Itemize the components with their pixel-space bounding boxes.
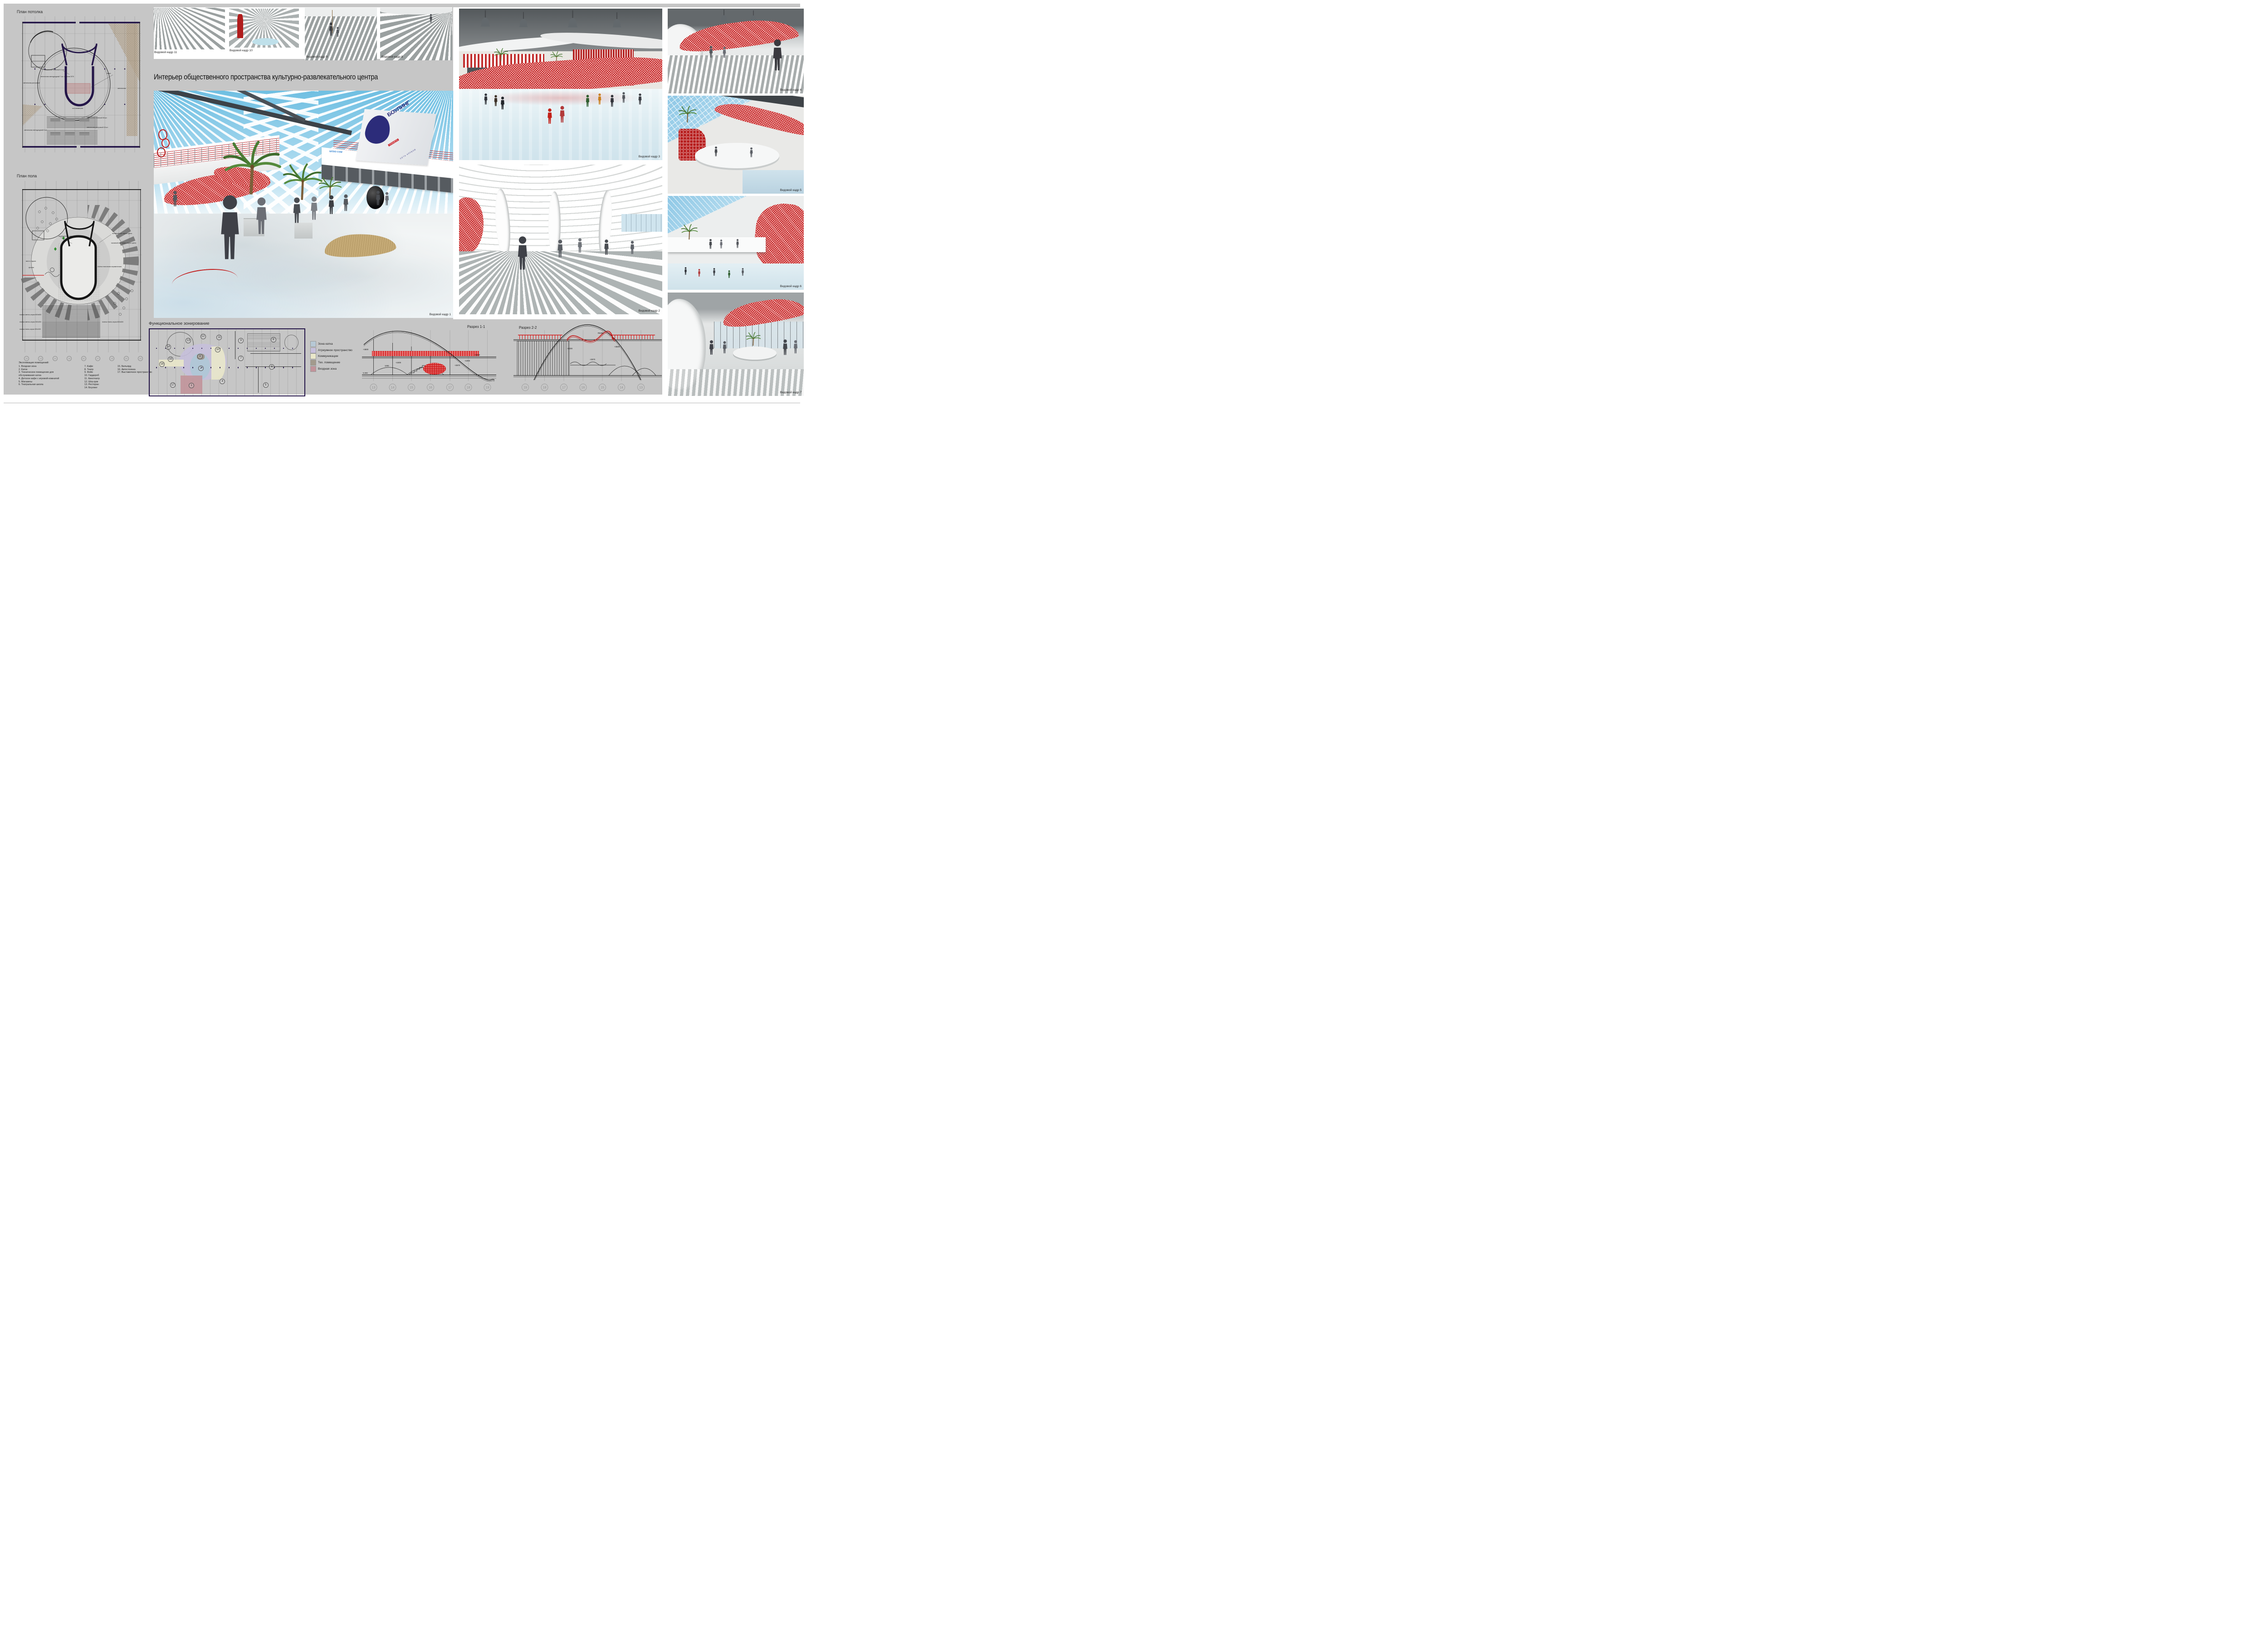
skater-silhouette — [610, 95, 615, 107]
skater-silhouette — [713, 268, 716, 276]
zoning-title: Функциональное зонирование — [149, 321, 210, 326]
round-planter-bench — [733, 346, 777, 360]
dimension: +2670 — [455, 364, 460, 366]
section-grid-number: 14 — [391, 386, 395, 390]
person-silhouette — [709, 239, 713, 249]
striped-ceiling-perspective — [154, 8, 225, 49]
zone-number: 3 — [197, 354, 203, 359]
hanging-lamp — [518, 12, 529, 29]
ceiling-plan-drawing: светильник точечный 11 шт. светильник св… — [19, 15, 144, 156]
person-silhouette — [722, 47, 727, 59]
ceiling-annotation: светильник точечный 36 шт. — [87, 117, 107, 119]
legend-swatch-communications — [310, 353, 316, 359]
floor-plan-title: План пола — [17, 174, 37, 178]
view-render-4: Видовой кадр 4 — [668, 9, 804, 93]
section-grid-number: 13 — [639, 386, 643, 390]
section-grid-number: 19 — [486, 386, 489, 390]
person-silhouette — [714, 146, 718, 157]
legend-swatch-atrium — [310, 347, 316, 353]
column-dots-row — [156, 367, 298, 368]
section-grid-number: 13 — [372, 386, 376, 390]
legend-label: Коммуникации — [318, 355, 338, 358]
explication-item: 1. Входная зона — [19, 365, 69, 368]
partition-wall — [235, 331, 235, 359]
person-silhouette — [384, 192, 390, 206]
view-render-11 — [154, 8, 225, 49]
pool-water — [252, 38, 279, 45]
palm-tree — [676, 106, 699, 123]
explication-item: 13. Ресторан — [84, 383, 116, 386]
dimension: +1000 — [464, 360, 470, 362]
zone-number: 5 — [263, 382, 269, 388]
skater-silhouette — [484, 93, 488, 105]
zone-number: 15 — [168, 356, 173, 362]
legend-swatch-entrance — [310, 366, 316, 372]
person-silhouette — [309, 196, 319, 221]
person-silhouette — [630, 241, 635, 255]
view-render-5: Видовой кадр 5 — [668, 96, 804, 194]
ceiling-annotation: светильник растровый 18 шт. — [87, 127, 108, 128]
section-2-2-drawing: 19 18 17 16 15 14 13 +1000 +2670 +3500 R… — [513, 321, 662, 395]
zone-number: 11 — [216, 335, 222, 340]
palm-tree — [744, 332, 763, 346]
grid-bubble: 14 — [53, 356, 58, 361]
legend-swatch-tech — [310, 360, 316, 366]
legend-label: Тех. помещение — [318, 361, 340, 364]
footer-rule — [4, 403, 800, 403]
floor-annotation: наливной пол темно-серого цвета — [111, 242, 136, 244]
explication-title: Экспликация помещений: — [19, 361, 160, 364]
person-silhouette — [254, 197, 269, 236]
zone-number: 13 — [186, 338, 191, 343]
floor-annotation: плитка темно-серая 300х300 — [20, 328, 41, 330]
bowling-sign-tagline: СЕТЬ КЛУБОВ — [400, 148, 416, 159]
ceiling-annotation: навес — [107, 73, 111, 74]
partition-wall — [250, 353, 302, 354]
skater-silhouette — [597, 93, 602, 105]
legend-swatch-rink — [310, 341, 316, 347]
elevation-mark: +3500 — [614, 346, 620, 348]
section-grid-number: 17 — [448, 386, 452, 390]
view-render-1-main: NITRO COM in-Sider БОУЛИНГ ПЛАНЕТА СЕТЬ … — [154, 91, 453, 318]
section-1-1-label: Разрез 1-1 — [467, 325, 485, 329]
room-explication: Экспликация помещений: 1. Входная зона 2… — [19, 361, 160, 365]
red-pillar — [237, 14, 243, 38]
explication-item: 14. Боулинг — [84, 386, 116, 390]
view-render-3-ice-rink: Видовой кадр 3 — [459, 9, 662, 160]
skater-silhouette — [638, 93, 642, 105]
section-grid-number: 19 — [523, 386, 527, 390]
floor-annotation: плитка светло-серая 600х600 — [20, 314, 41, 316]
view-label: Видовой кадр 4 — [780, 88, 802, 92]
round-balcony — [695, 143, 779, 168]
skater-silhouette — [585, 95, 590, 107]
grid-bubble: 12 — [24, 356, 29, 361]
skater-silhouette — [698, 269, 701, 277]
floor-annotation: наливной пол светло-серого цвета — [59, 235, 84, 237]
zone-number: 16 — [159, 361, 165, 367]
grid-bubble: 16 — [81, 356, 86, 361]
grid-bubble: 20 — [138, 356, 143, 361]
view-label: Видовой кадр 6 — [780, 285, 802, 288]
skater-silhouette — [621, 92, 626, 103]
floor-annotation: фонтан — [29, 267, 34, 268]
ceiling-annotation: светильник точечный 11 шт. — [44, 69, 64, 71]
zone-number: 10 — [215, 347, 220, 352]
elevation-mark: +4500 — [363, 348, 369, 351]
palm-tree — [679, 224, 700, 240]
ceiling-annotation: ось симметрии — [72, 107, 83, 109]
legend-label: Входная зона — [318, 367, 337, 371]
grid-bubble: 15 — [67, 356, 72, 361]
red-ornament-ring — [161, 138, 170, 148]
bowling-sign-board: БОУЛИНГ ПЛАНЕТА СЕТЬ КЛУБОВ — [356, 109, 437, 166]
zone-number: 8 — [271, 337, 276, 342]
legend-row: Атриумное пространство — [310, 347, 352, 354]
skater-silhouette — [559, 106, 566, 124]
explication-item: 11. Кинотеатр — [84, 377, 116, 381]
grid-bubble: 17 — [95, 356, 100, 361]
striped-floor-fan — [380, 8, 452, 60]
balcony-band — [380, 8, 452, 15]
flag-pole — [332, 10, 332, 33]
dimension: +2400 — [396, 361, 401, 364]
section-grid-number: 16 — [582, 386, 585, 390]
radial-striped-floor — [459, 251, 662, 314]
legend-row: Зона катка — [310, 341, 352, 347]
skater-silhouette — [684, 267, 687, 275]
person-silhouette — [736, 239, 739, 249]
view-label: Видовой кадр 1 — [430, 313, 451, 316]
view-label: Видовой кадр 2 — [639, 309, 660, 312]
grid-bubble: 13 — [38, 356, 43, 361]
section-grid-number: 14 — [620, 386, 623, 390]
person-silhouette — [749, 147, 753, 158]
explication-column-1: 1. Входная зона 2. Каток 3. Техническое … — [19, 365, 69, 386]
explication-column-2: 7. Кафе 8. Театр 9. Фойе 10. Гардероб 11… — [84, 365, 116, 390]
view-label: Видовой кадр 5 — [780, 189, 802, 192]
section-grid-number: 15 — [410, 386, 413, 390]
legend-label: Зона катка — [318, 342, 333, 346]
partition-wall — [258, 366, 259, 393]
zone-number: 12 — [200, 334, 206, 339]
person-silhouette — [722, 341, 727, 354]
person-silhouette — [429, 14, 433, 23]
hanging-lamp — [719, 10, 728, 23]
column-gap — [453, 7, 458, 319]
view-label: Видовой кадр 10 — [230, 49, 253, 52]
floor-annotation: плитка темно-серая 600х600 — [102, 321, 123, 323]
section-1-1: Разрез 1-1 13 — [362, 321, 496, 395]
section-grid-number: 18 — [467, 386, 470, 390]
view-label: Видовой кадр 8 — [381, 55, 403, 59]
person-silhouette — [557, 239, 564, 259]
skater-silhouette — [741, 268, 744, 276]
bowling-sign-subtext: ПЛАНЕТА — [388, 138, 400, 146]
person-silhouette — [793, 340, 798, 354]
legend-row: Тех. помещение — [310, 360, 352, 366]
view-label: Видовой кадр 11 — [154, 51, 177, 54]
person-silhouette — [172, 190, 178, 208]
skater-silhouette — [728, 270, 731, 278]
ceiling-plan-title: План потолка — [17, 10, 43, 14]
elevation-mark: 0.000 — [363, 372, 368, 374]
red-ornament-ring — [157, 147, 166, 157]
explication-item: 6. Театральная школа — [19, 383, 69, 386]
section-grid-number: 15 — [601, 386, 604, 390]
dimension: 1200 — [385, 365, 389, 367]
person-silhouette-foreground — [516, 236, 529, 272]
view-render-2-walkway: Видовой кадр 2 — [459, 165, 662, 314]
grid-bubble: 18 — [109, 356, 114, 361]
explication-item: 9. Фойе — [84, 371, 116, 374]
window-band — [621, 214, 662, 232]
person-silhouette — [577, 238, 583, 254]
ceiling-annotation: светильник светодиодный 7 шт. с шагом 23… — [40, 76, 74, 78]
column-dots-row — [156, 348, 298, 349]
page-title: Интерьер общественного пространства куль… — [154, 73, 416, 82]
hanging-lamp — [567, 10, 579, 29]
person-silhouette — [375, 190, 381, 206]
person-silhouette — [327, 195, 335, 215]
floor-plan-grid-bubbles: 12 13 14 15 16 17 18 19 20 — [24, 356, 143, 361]
ceiling-annotation: светильник светодиодный 6 шт. — [24, 129, 47, 131]
zone-number: 14 — [166, 344, 171, 350]
floor-annotation: место отдыха — [26, 260, 36, 262]
dimension: +3500 — [474, 354, 480, 356]
legend-row: Входная зона — [310, 366, 352, 372]
elevation-mark: +1000 — [567, 347, 573, 350]
floor-plan-drawing: наливной пол светло-серого цвета наливно… — [19, 180, 145, 354]
elevation-mark: +2670 — [590, 358, 596, 361]
zoning-legend: Зона катка Атриумное пространство Коммун… — [310, 341, 352, 372]
zone-number: 2 — [198, 366, 204, 371]
person-silhouette — [709, 46, 714, 59]
section-grid-number: 16 — [429, 386, 432, 390]
grid-bubble: 19 — [124, 356, 129, 361]
view-label: Видовой кадр 7 — [780, 391, 802, 394]
section-grid-number: 17 — [562, 386, 566, 390]
explication-item: 2. Каток — [19, 368, 69, 371]
floor-annotation: наливной пол серого цвета — [112, 233, 132, 234]
explication-item: 3. Техническое помещение для обслуживани… — [19, 371, 69, 377]
legend-label: Атриумное пространство — [318, 349, 352, 352]
person-silhouette — [782, 339, 788, 356]
person-silhouette — [342, 194, 349, 212]
functional-zoning-plan: 1 2 3 4 5 6 7 8 9 10 11 12 13 14 15 16 1… — [149, 328, 305, 396]
section-1-1-drawing: 13 14 15 16 17 18 19 +4500 0.000 1200 +2… — [362, 321, 496, 395]
view-render-7: Видовой кадр 7 — [668, 293, 804, 396]
explication-item: 12. Шоу-рум — [84, 381, 116, 384]
view-label: Видовой кадр 3 — [639, 155, 660, 158]
skater-silhouette — [500, 97, 505, 110]
zone-number: 1 — [189, 383, 194, 388]
planter-box — [294, 223, 313, 239]
person-silhouette-foreground — [771, 39, 784, 73]
bowling-ball-logo — [363, 114, 393, 144]
nitro-shop-sign: NITRO COM — [329, 151, 342, 154]
palm-tree — [492, 48, 511, 62]
explication-item: 10. Гардероб — [84, 374, 116, 377]
poster-board: План потолка — [4, 4, 800, 395]
person-silhouette-foreground — [217, 195, 243, 263]
hanging-lamp — [611, 12, 622, 29]
explication-item: 5. Магазины — [19, 381, 69, 384]
floor-annotation: плитка напольная керамическая — [98, 266, 122, 268]
view-render-8: Видовой кадр 8 — [380, 8, 452, 60]
zone-number: 7 — [238, 356, 244, 361]
section-2-2-label: Разрез 2-2 — [519, 326, 537, 330]
person-silhouette — [292, 197, 302, 224]
floor-annotation: плитка светло-серая 300х300 — [20, 321, 41, 323]
section-grid-number: 18 — [543, 386, 547, 390]
person-silhouette — [709, 340, 714, 356]
view-render-6: Видовой кадр 6 — [668, 196, 804, 290]
view-render-10 — [229, 9, 299, 48]
ceiling-annotation: светильник — [117, 88, 126, 89]
zone-number: 17 — [170, 382, 176, 388]
radius-mark: R9458 — [598, 332, 604, 334]
presentation-board-page: План потолка — [0, 0, 804, 406]
hanging-lamp — [479, 10, 491, 28]
skater-silhouette — [494, 95, 498, 107]
person-silhouette — [603, 239, 610, 256]
zone-number: 6 — [269, 364, 274, 370]
zone-number: 9 — [238, 338, 244, 343]
ceiling-band — [305, 8, 377, 16]
explication-item: 7. Кафе — [84, 365, 116, 368]
explication-item: 4. Детское кафе с игровой комнатой — [19, 377, 69, 381]
person-silhouette — [336, 27, 340, 38]
section-2-2: Разрез 2-2 19 — [513, 321, 662, 395]
person-silhouette — [719, 239, 723, 249]
view-label: Видовой кадр 9 — [306, 55, 327, 59]
skater-child-red — [547, 108, 553, 125]
ceiling-annotation: светильник растровый — [23, 82, 40, 84]
person-silhouette — [328, 22, 334, 37]
zone-number: 4 — [220, 379, 225, 384]
view-render-9: Видовой кадр 9 — [305, 8, 377, 60]
legend-row: Коммуникации — [310, 353, 352, 360]
